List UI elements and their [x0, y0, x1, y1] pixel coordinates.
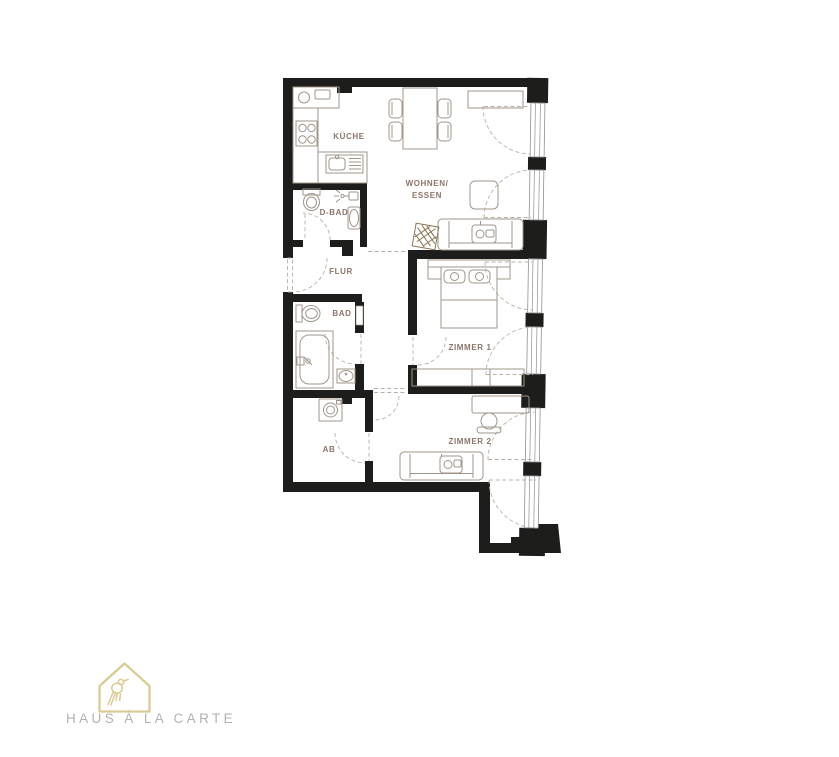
- door-arc: [335, 433, 369, 463]
- house-with-bird-icon: [100, 664, 150, 712]
- toilet: [303, 189, 320, 211]
- sofa: [400, 452, 483, 480]
- desk: [472, 396, 529, 413]
- floor-plan-drawing: KÜCHE WOHNEN/ ESSEN D-BAD FLUR BAD AB ZI…: [0, 0, 839, 757]
- toilet: [296, 305, 320, 322]
- room-label-zimmer1: ZIMMER 1: [448, 343, 491, 352]
- washbasin: [348, 207, 360, 229]
- entrance-door-arc: [288, 258, 328, 292]
- window: [530, 103, 545, 157]
- room-label-bad: BAD: [332, 309, 351, 318]
- floor-plan-page: KÜCHE WOHNEN/ ESSEN D-BAD FLUR BAD AB ZI…: [0, 0, 839, 757]
- room-label-ab: AB: [323, 445, 336, 454]
- dining-table: [389, 88, 451, 149]
- window: [528, 259, 543, 313]
- kitchen-sink: [326, 155, 363, 173]
- door-arc: [325, 334, 361, 364]
- stove: [296, 121, 317, 146]
- window: [524, 476, 539, 528]
- washbasin: [337, 369, 355, 383]
- bathtub: [296, 331, 333, 388]
- window: [529, 170, 544, 220]
- sideboard: [468, 91, 523, 108]
- room-label-d-bad: D-BAD: [320, 208, 349, 217]
- room-labels: KÜCHE WOHNEN/ ESSEN D-BAD FLUR BAD AB ZI…: [320, 132, 492, 454]
- bird-glyph: [108, 679, 128, 705]
- living-sofa: [438, 219, 523, 250]
- window: [525, 408, 540, 462]
- room-label-flur: FLUR: [329, 267, 353, 276]
- door-arc: [303, 213, 330, 240]
- door-arc: [413, 337, 446, 365]
- room-label-wohnen-essen-2: ESSEN: [412, 191, 442, 200]
- room-label-wohnen-essen: WOHNEN/: [406, 179, 449, 188]
- window: [527, 327, 542, 374]
- washing-machine: [319, 399, 342, 421]
- shower-head-icon: [334, 190, 358, 202]
- window-wall: [518, 78, 553, 556]
- wall-niche: [356, 306, 363, 325]
- room-label-kueche: KÜCHE: [333, 132, 365, 141]
- side-table: [470, 181, 498, 209]
- room-label-zimmer2: ZIMMER 2: [448, 437, 491, 446]
- desk-chair: [477, 413, 501, 433]
- plant: [412, 223, 439, 250]
- door-arc: [374, 389, 407, 421]
- wardrobe: [412, 369, 524, 386]
